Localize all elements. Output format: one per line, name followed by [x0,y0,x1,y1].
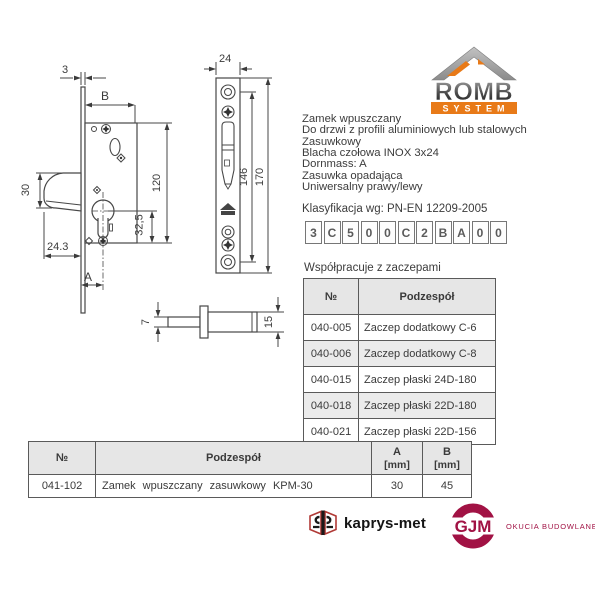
compat-part: Zaczep dodatkowy C-6 [359,315,496,341]
dim-label-bolt-height: 30 [20,184,32,196]
product-description: Zamek wpuszczany Do drzwi z profili alum… [302,114,588,193]
compat-part: Zaczep płaski 22D-180 [359,393,496,419]
table-row: 040-006 Zaczep dodatkowy C-8 [304,341,496,367]
dim-label-a: A [84,270,92,284]
b-unit: [mm] [424,459,470,471]
product-header-no: № [29,442,96,475]
lock-side-view-drawing [36,72,172,313]
compat-no: 040-018 [304,393,359,419]
roof-icon [432,47,516,80]
table-row: 041-102 Zamek wpuszczany zasuwkowy KPM-3… [29,475,472,498]
kaprys-met-wordmark: kaprys-met [344,515,426,532]
datasheet-page: 3 B 120 30 24.3 32,5 A 24 146 170 7 15 R… [0,0,600,600]
dim-label-pin-body: 15 [263,316,275,328]
book-icon [308,508,338,538]
system-wordmark: SYSTEM [442,104,509,114]
product-header-part: Podzespół [96,442,372,475]
code-cell: 0 [472,221,489,244]
romb-system-logo: ROMB SYSTEM [428,42,520,114]
product-part: Zamek wpuszczany zasuwkowy KPM-30 [96,475,372,498]
dim-label-pin-shaft: 7 [140,319,152,325]
product-b: 45 [423,475,472,498]
dim-label-bolt-projection: 24.3 [47,241,68,253]
product-a: 30 [372,475,423,498]
dim-label-hole-span: 146 [238,168,250,186]
code-cell: C [324,221,341,244]
dim-label-plate-thickness: 3 [62,64,68,76]
gjm-logo: GJM OKUCIA BUDOWLANE [450,502,595,550]
product-table: № Podzespół A [mm] B [mm] 041-102 Zamek … [28,441,472,498]
dim-label-faceplate-height: 170 [254,168,266,186]
romb-wordmark: ROMB [435,78,513,106]
dim-label-faceplate-width: 24 [219,53,231,65]
dim-label-cylinder-offset: 32,5 [134,214,146,235]
classification-code: 3 C 5 0 0 C 2 B A 0 0 [305,221,507,244]
code-cell: 3 [305,221,322,244]
code-cell: 0 [379,221,396,244]
a-label: A [393,446,401,458]
gjm-tagline: OKUCIA BUDOWLANE [506,522,595,531]
code-cell: A [453,221,470,244]
code-cell: 0 [490,221,507,244]
product-header-a: A [mm] [372,442,423,475]
compat-no: 040-015 [304,367,359,393]
compat-header-no: № [304,279,359,315]
product-no: 041-102 [29,475,96,498]
table-header-row: № Podzespół A [mm] B [mm] [29,442,472,475]
classification-label: Klasyfikacja wg: PN-EN 12209-2005 [302,203,487,215]
compat-part: Zaczep dodatkowy C-8 [359,341,496,367]
a-unit: [mm] [373,459,421,471]
table-header-row: № Podzespół [304,279,496,315]
code-cell: 2 [416,221,433,244]
dim-label-b: B [101,89,109,103]
gjm-wordmark: GJM [455,517,492,536]
compat-table: № Podzespół 040-005 Zaczep dodatkowy C-6… [303,278,496,445]
code-cell: C [398,221,415,244]
description-line: Uniwersalny prawy/lewy [302,182,588,193]
b-label: B [443,446,451,458]
table-row: 040-005 Zaczep dodatkowy C-6 [304,315,496,341]
compat-part: Zaczep płaski 24D-180 [359,367,496,393]
code-cell: 5 [342,221,359,244]
product-header-b: B [mm] [423,442,472,475]
compat-header-part: Podzespół [359,279,496,315]
description-line: Do drzwi z profili aluminiowych lub stal… [302,125,588,136]
dim-label-body-height: 120 [151,174,163,192]
compat-title: Współpracuje z zaczepami [304,262,441,274]
compat-no: 040-006 [304,341,359,367]
table-row: 040-018 Zaczep płaski 22D-180 [304,393,496,419]
compat-no: 040-005 [304,315,359,341]
kaprys-met-logo: kaprys-met [308,508,426,538]
code-cell: B [435,221,452,244]
table-row: 040-015 Zaczep płaski 24D-180 [304,367,496,393]
code-cell: 0 [361,221,378,244]
